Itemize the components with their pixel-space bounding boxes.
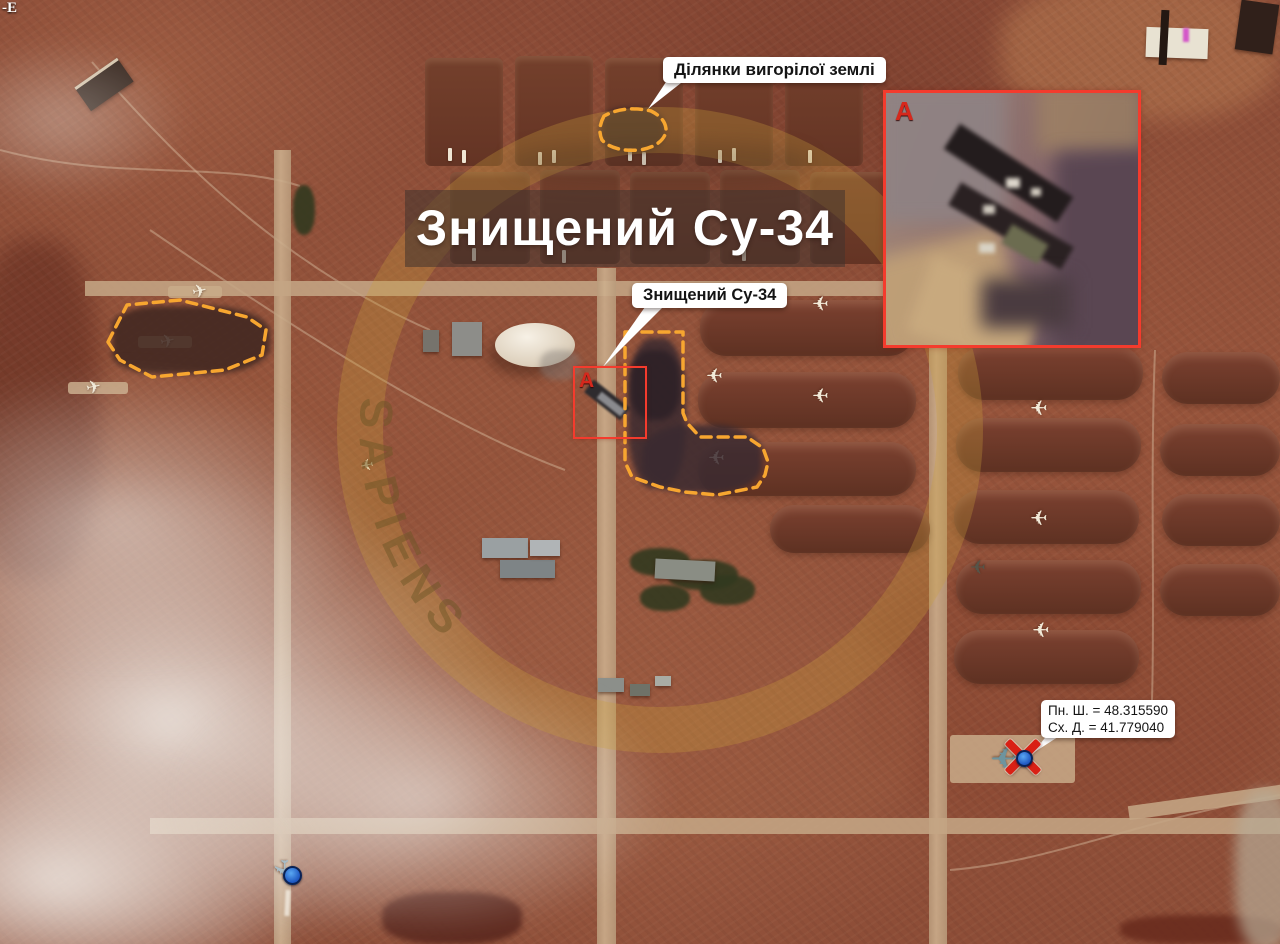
small-building — [630, 684, 650, 696]
building-white-topright — [1145, 27, 1208, 59]
inset-terrain-tan-top — [1036, 90, 1141, 153]
coordinate-longitude: Сх. Д. = 41.779040 — [1048, 719, 1168, 736]
gray-building — [530, 540, 560, 556]
revetment — [956, 418, 1141, 472]
support-building — [423, 330, 439, 352]
tree-row — [640, 585, 690, 611]
inset-debris-4 — [979, 243, 995, 253]
label-coordinates: Пн. Ш. = 48.315590 Сх. Д. = 41.779040 — [1041, 700, 1175, 738]
label-destroyed-su34: Знищений Су-34 — [632, 283, 787, 308]
target-box-letter: А — [579, 369, 594, 393]
building-in-trees — [655, 558, 716, 581]
revetment — [1162, 494, 1280, 546]
support-building — [452, 322, 482, 356]
revetment — [1160, 564, 1280, 616]
target-box: А — [573, 366, 647, 439]
inset-debris-1 — [1006, 178, 1020, 188]
title-overlay: Знищений Су-34 — [405, 190, 845, 267]
light-field-bottom-right — [1235, 790, 1280, 944]
aircraft-icon: ✈ — [1032, 618, 1050, 639]
revetment — [698, 372, 916, 428]
road-vertical-right — [929, 288, 947, 944]
corner-mark: -Е — [2, 0, 17, 17]
gray-building — [500, 560, 555, 578]
aircraft-icon: ✈ — [706, 364, 723, 384]
small-building — [655, 676, 671, 686]
inset-letter: А — [895, 96, 914, 127]
inset-debris-2 — [1031, 188, 1041, 196]
aircraft-icon: ✈ — [812, 384, 829, 404]
shelter-mark — [462, 150, 466, 163]
inset-zoom-box: А — [883, 90, 1141, 348]
label-burned-ground: Ділянки вигорілої землі — [663, 57, 886, 83]
revetment — [958, 346, 1143, 400]
mast-glint — [1183, 28, 1189, 42]
aircraft-icon: ✈ — [1030, 396, 1048, 417]
revetment — [1162, 352, 1280, 404]
watermark-top-faint — [510, 142, 810, 184]
revetment — [1160, 424, 1280, 476]
small-building — [598, 678, 624, 692]
annotated-satellite-image: ✈ ✈ ✈ ✈ ✈ ✈ ✈ ✈ ✈ ✈ ✈ ✈ SAPIEN — [0, 0, 1280, 944]
coordinate-latitude: Пн. Ш. = 48.315590 — [1048, 702, 1168, 719]
shelter-mark — [448, 148, 452, 161]
inset-debris-3 — [983, 205, 995, 214]
burn-scar-center-horizontal — [642, 425, 762, 493]
burn-scar-left — [112, 306, 270, 374]
tree-row — [293, 185, 315, 235]
inset-shadow-blob — [981, 278, 1071, 328]
mast-structure — [1235, 0, 1280, 54]
x-marker-center-dot — [1016, 750, 1033, 767]
blue-dot-marker — [283, 866, 302, 885]
gray-building — [482, 538, 528, 558]
aircraft-icon: ✈ — [970, 556, 986, 575]
revetment — [770, 505, 930, 553]
aircraft-icon: ✈ — [1030, 506, 1048, 527]
aircraft-icon: ✈ — [812, 292, 829, 312]
